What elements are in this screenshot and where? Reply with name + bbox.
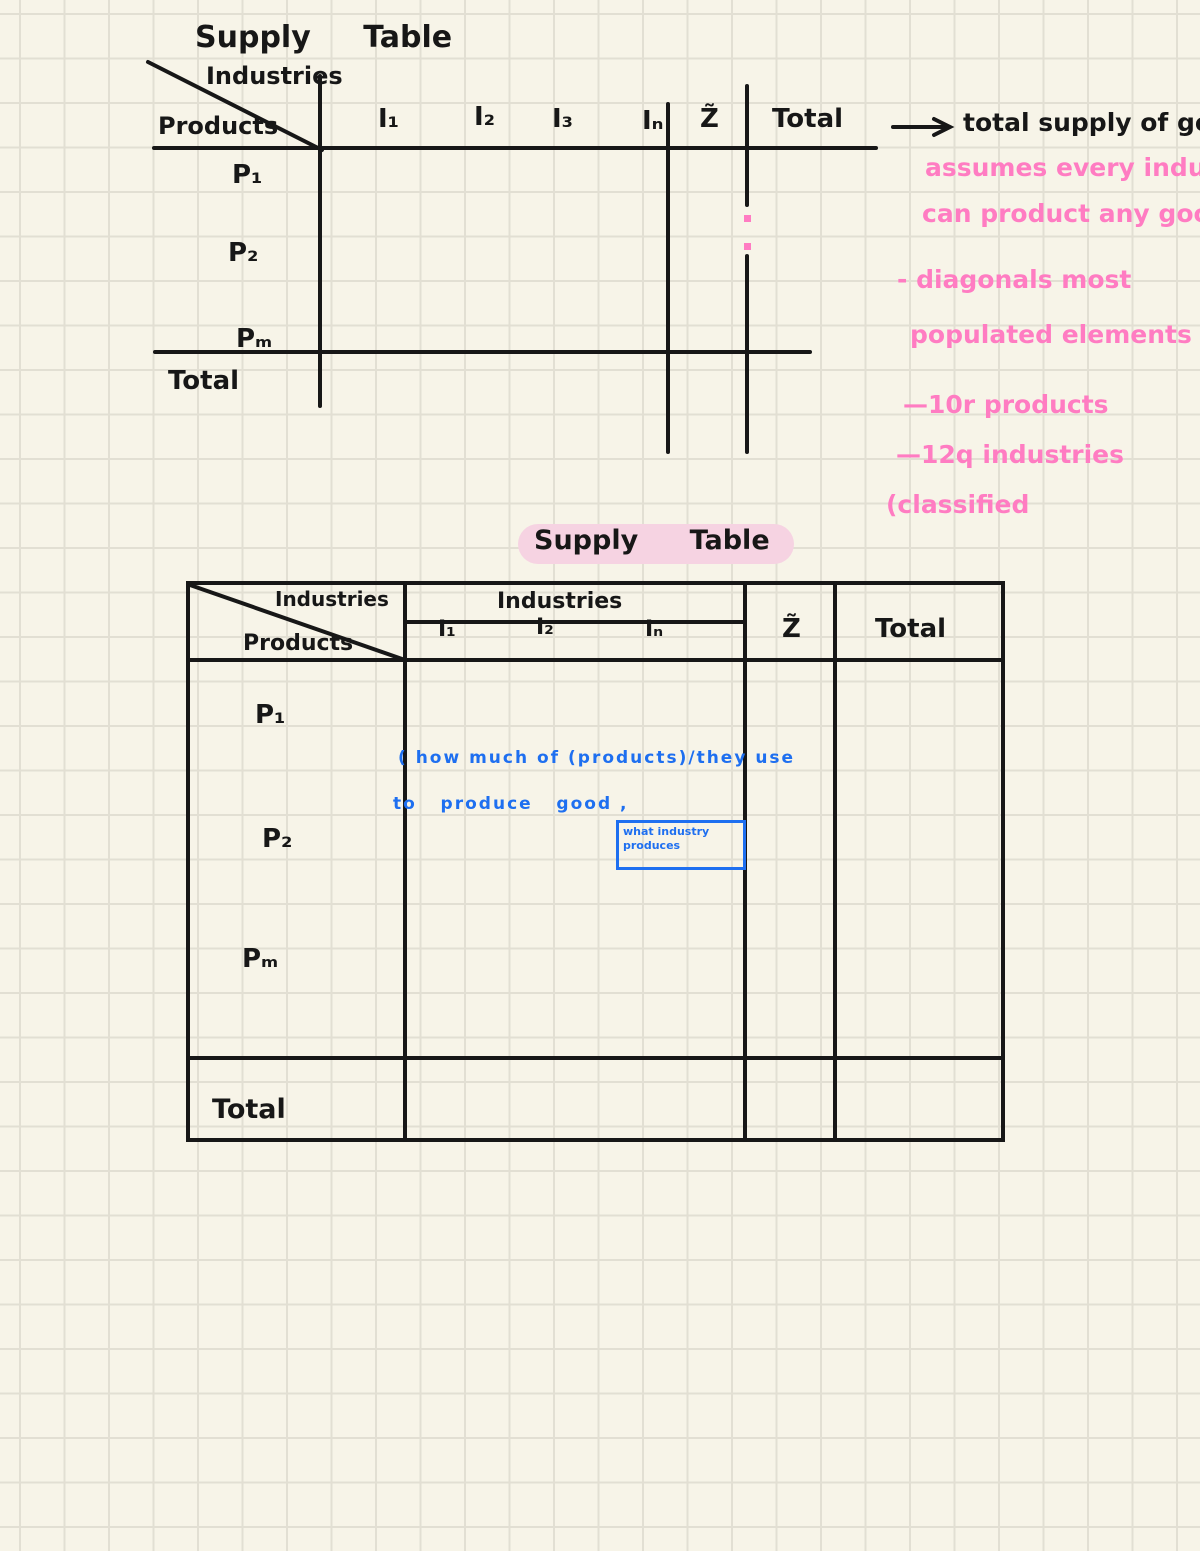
table1-row-p2: P₂ (228, 240, 258, 267)
table2-corner-industries: Industries (275, 589, 389, 610)
table2-sub-i2: I₂ (536, 616, 554, 639)
table2-row-p2: P₂ (262, 826, 292, 853)
blue-note-line2: to produce good , (393, 796, 629, 814)
table1-col-total: Total (772, 106, 843, 133)
blue-box-line1: what industry (623, 825, 739, 839)
table2-row-p1: P₁ (255, 702, 285, 729)
table2-col-total: Total (875, 616, 946, 643)
blue-box-line2: produces (623, 839, 739, 853)
pink-note-6: —12q industries (896, 442, 1124, 468)
table1-col-in: Iₙ (642, 108, 664, 135)
table2-sub-i1: I₁ (438, 618, 456, 641)
table2-title: Supply Table (534, 527, 770, 555)
blue-note-line1: ( how much of (products)/they use (398, 750, 795, 768)
table1-corner-industries: Industries (206, 64, 343, 89)
pink-tick-1 (744, 215, 751, 222)
annotation-arrow-head (934, 119, 950, 135)
table2-group-industries: Industries (497, 590, 622, 613)
table1-col-i3: I₃ (552, 106, 573, 133)
table2-row-pm: Pₘ (242, 946, 278, 973)
table1-corner-products: Products (158, 114, 278, 139)
table1-row-pm: Pₘ (236, 326, 272, 353)
table1-col-i2: I₂ (474, 104, 495, 131)
pink-tick-2 (744, 243, 751, 250)
hand-drawn-lines (0, 0, 1200, 1551)
pink-note-2: can product any goods (922, 201, 1200, 227)
table2-lines (188, 583, 1003, 1140)
table1-col-z: Z̃ (700, 106, 719, 133)
table1-row-p1: P₁ (232, 162, 262, 189)
arrow-note: total supply of goods (963, 110, 1200, 136)
pink-note-3: - diagonals most (897, 267, 1131, 293)
table2-total-label: Total (212, 1096, 286, 1124)
pink-note-5: —10r products (903, 392, 1109, 418)
pink-note-1: assumes every industries (925, 155, 1200, 181)
table1-total-label: Total (168, 368, 239, 395)
table2-col-z: Z̃ (782, 616, 801, 643)
pink-note-4: populated elements (910, 322, 1192, 348)
table1-col-i1: I₁ (378, 106, 399, 133)
table1-title: Supply Table (195, 22, 452, 54)
blue-note-box: what industry produces (616, 820, 746, 870)
table2-sub-in: Iₙ (645, 618, 663, 641)
table2-corner-products: Products (243, 632, 353, 655)
pink-note-7: (classified (886, 492, 1029, 518)
table2-border (188, 583, 1003, 1140)
notebook-page: Supply Table Industries Products I₁ I₂ I… (0, 0, 1200, 1551)
pink-tick-marks (744, 215, 751, 250)
